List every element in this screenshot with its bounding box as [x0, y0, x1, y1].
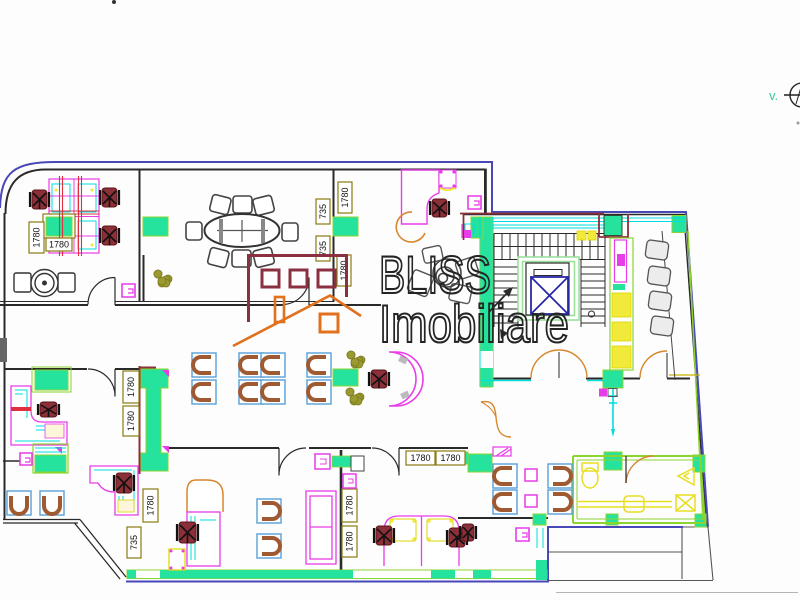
svg-text:735: 735: [318, 241, 328, 256]
svg-text:1780: 1780: [32, 227, 42, 247]
svg-text:Imobiliare: Imobiliare: [379, 295, 569, 354]
svg-text:1780: 1780: [440, 453, 460, 463]
svg-text:1780: 1780: [126, 411, 136, 431]
svg-text:1780: 1780: [410, 453, 430, 463]
svg-text:735: 735: [318, 204, 328, 219]
svg-text:1780: 1780: [126, 377, 136, 397]
svg-text:v.: v.: [769, 88, 778, 103]
svg-text:1780: 1780: [146, 495, 156, 515]
svg-text:1780: 1780: [345, 495, 355, 515]
svg-text:1780: 1780: [340, 187, 350, 207]
svg-text:735: 735: [129, 535, 139, 550]
svg-text:1780: 1780: [345, 531, 355, 551]
svg-text:1780: 1780: [49, 240, 69, 250]
